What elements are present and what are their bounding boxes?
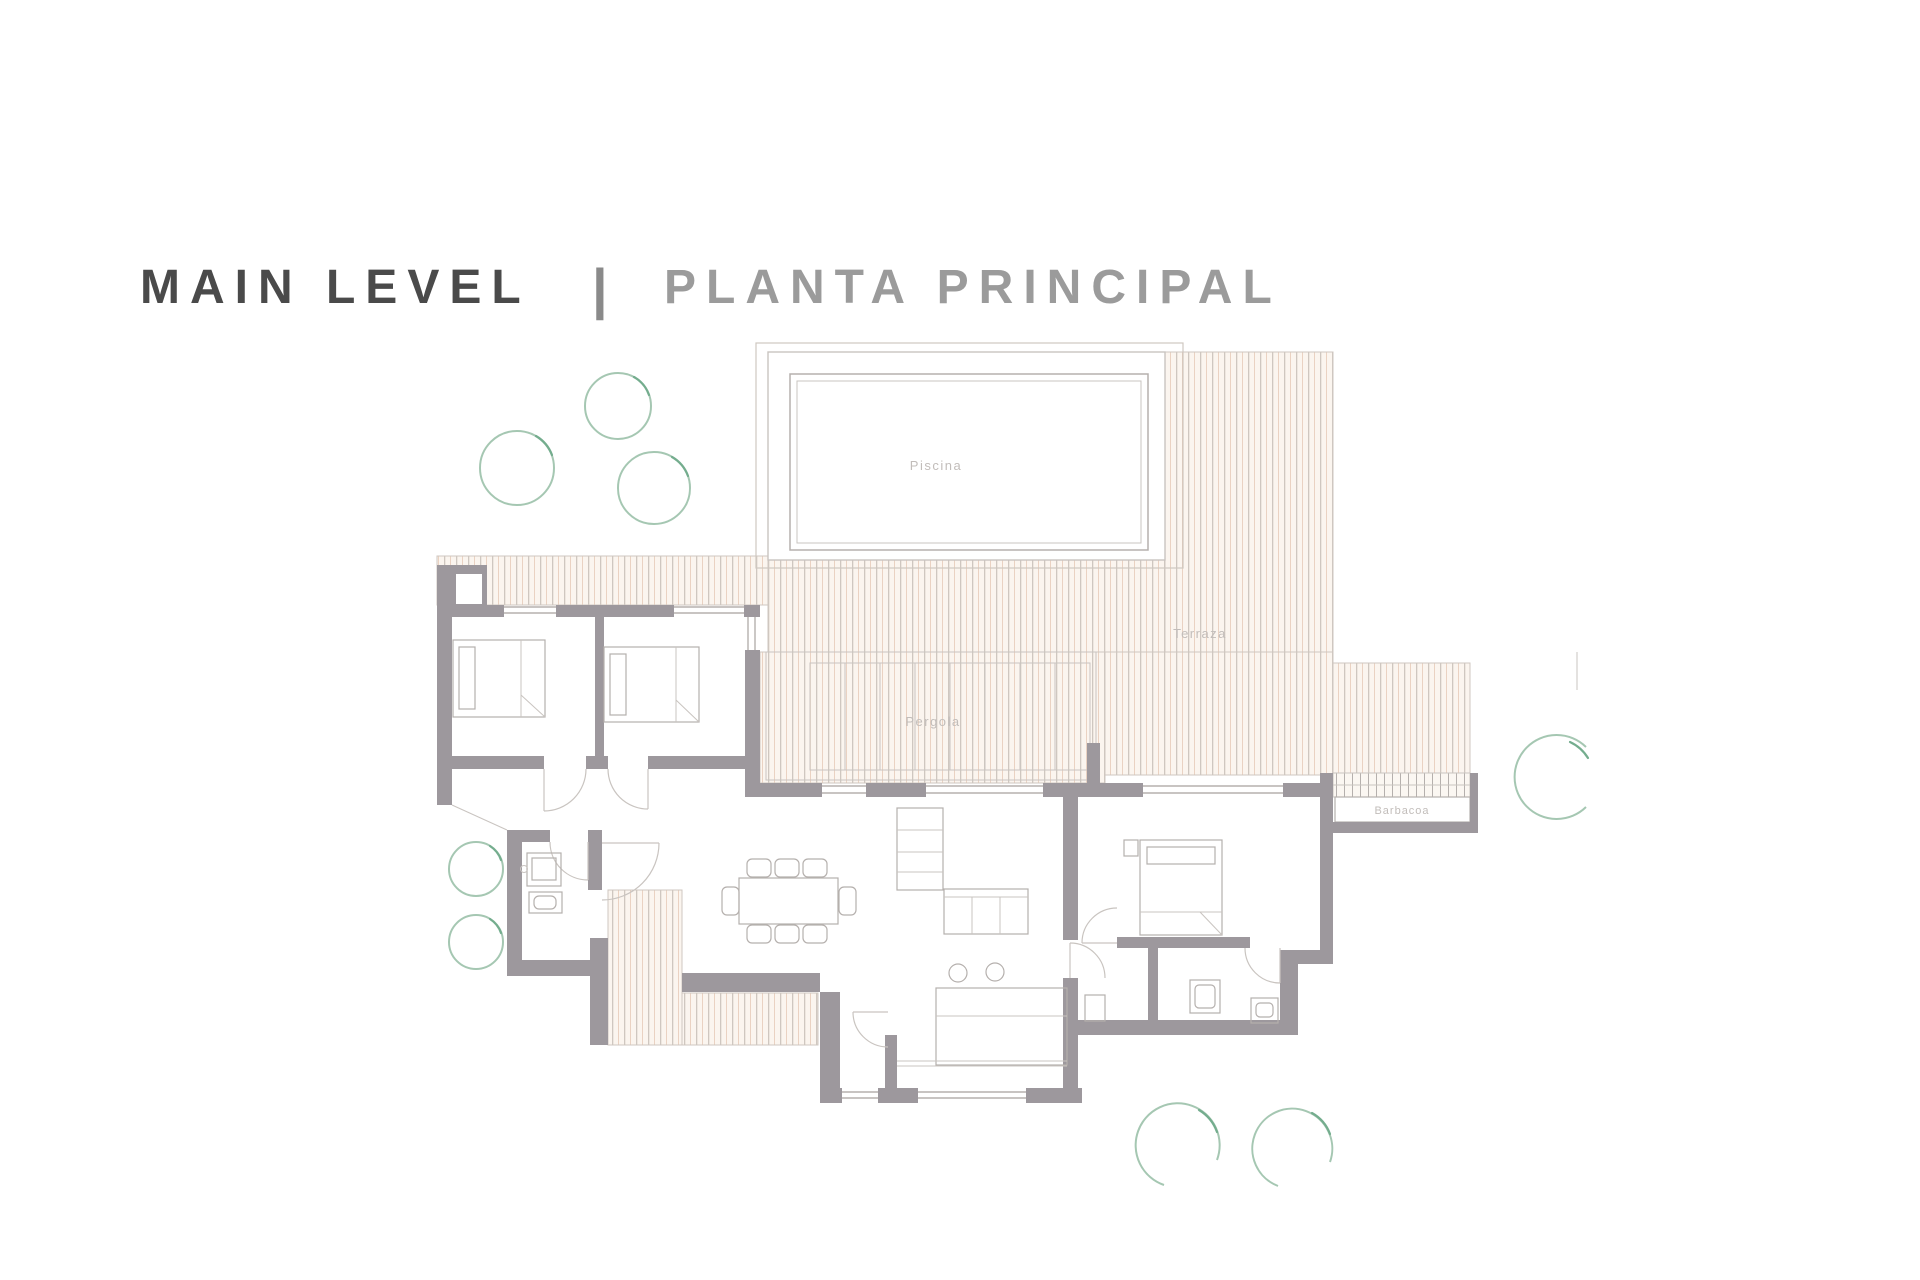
- kitchen-island: [897, 963, 1067, 1066]
- pool-basin: [790, 374, 1148, 550]
- floor-plan-canvas: MAIN LEVEL | PLANTA PRINCIPAL: [0, 0, 1920, 1280]
- deck-entry-band: [682, 993, 818, 1045]
- plan-title: MAIN LEVEL | PLANTA PRINCIPAL: [140, 257, 1282, 321]
- page-subtitle: PLANTA PRINCIPAL: [664, 261, 1282, 314]
- floor-plan-page: MAIN LEVEL | PLANTA PRINCIPAL: [0, 0, 1920, 1280]
- ensuite-fixtures: [1190, 980, 1278, 1023]
- deck-terrace-lower: [1105, 652, 1333, 775]
- deck-pool-south: [768, 560, 1165, 652]
- barbecue-label: Barbacoa: [1374, 805, 1429, 817]
- bed: [1124, 840, 1222, 935]
- deck-terrace-east: [1165, 352, 1333, 652]
- bed: [604, 647, 699, 722]
- wc-fixtures: [1085, 995, 1105, 1021]
- bed: [453, 640, 545, 717]
- deck-barbecue-balcony: [1333, 663, 1470, 773]
- pergola-label: Pergola: [905, 714, 960, 729]
- pool-label: Piscina: [910, 458, 962, 473]
- tree: [1515, 735, 1586, 819]
- page-title: MAIN LEVEL: [140, 261, 531, 314]
- bathroom-fixtures: [521, 853, 563, 913]
- deck-entry-column: [608, 890, 682, 1045]
- dining-table: [722, 859, 856, 943]
- shelf-unit: [897, 808, 943, 890]
- pool: [756, 343, 1183, 568]
- terrace-label: Terraza: [1173, 626, 1227, 641]
- sofa: [944, 889, 1028, 934]
- title-divider: |: [592, 257, 608, 321]
